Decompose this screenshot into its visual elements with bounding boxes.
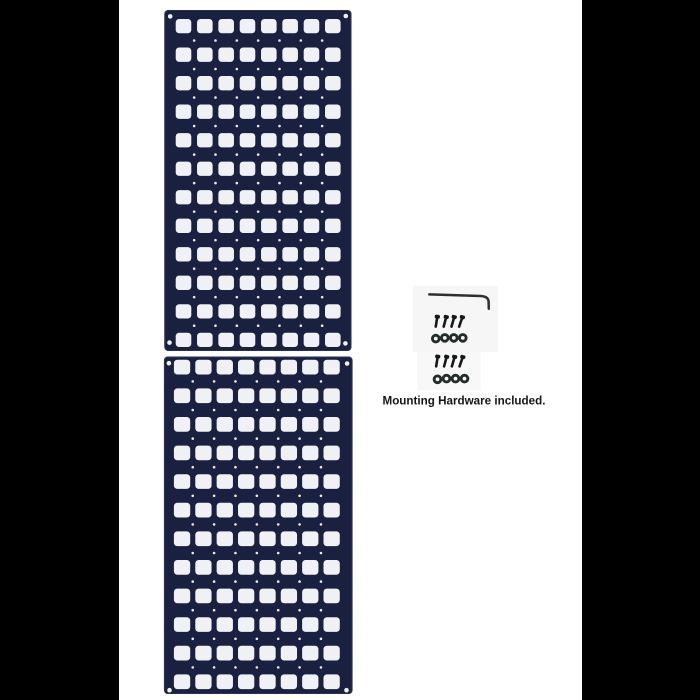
svg-text:Mounting Hardware included.: Mounting Hardware included. — [383, 395, 546, 408]
